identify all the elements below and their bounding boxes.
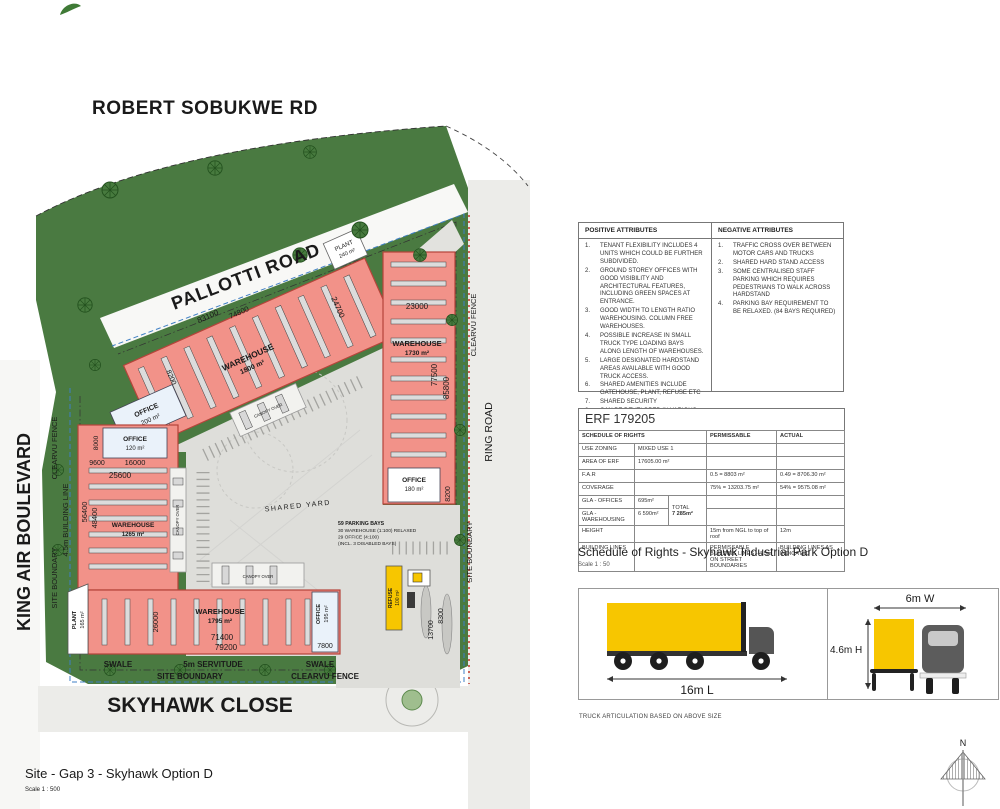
swale-left-label: SWALE (104, 660, 133, 669)
trailer-rear-skid (870, 669, 918, 691)
table-row: HEIGHT 15m from NGL to top of roof 12m (579, 526, 845, 543)
positive-attributes-header: POSITIVE ATTRIBUTES (579, 223, 711, 239)
cab-baseplate (920, 673, 966, 678)
row-value: MIXED USE 1 (635, 444, 707, 457)
empty-cell (707, 444, 777, 457)
trailer-headboard (741, 602, 746, 652)
dim-west-25600: 25600 (109, 471, 132, 480)
gla-total-value: 7 285m² (672, 511, 703, 517)
row-label: AREA OF ERF (579, 457, 635, 470)
actual-value: 54% = 9575.08 m² (777, 483, 845, 496)
list-item: 2.SHARED HARD STAND ACCESS (716, 260, 840, 268)
north-arrow: N (941, 738, 985, 806)
refuse-label: REFUSE (388, 587, 394, 608)
row-label: HEIGHT (579, 526, 635, 543)
table-row: SCHEDULE OF RIGHTS PERMISSABLE ACTUAL (579, 431, 845, 444)
canopy-west: CANOPY OVER (170, 468, 186, 572)
erf-number: ERF 179205 (578, 408, 845, 430)
left-boundary-label: SITE BOUNDARY (50, 547, 59, 608)
item-text: SHARED AMENITIES INCLUDE GATEHOUSE, PLAN… (600, 382, 708, 398)
dim-gate-13700: 13700 (428, 620, 435, 640)
item-number: 1. (716, 243, 733, 259)
schedule-caption-scale: Scale 1 : 50 (578, 562, 610, 568)
row-label: GLA - OFFICES (579, 496, 635, 509)
table-row: AREA OF ERF 17605.00 m² (579, 457, 845, 470)
item-text: TRAFFIC CROSS OVER BETWEEN MOTOR CARS AN… (733, 243, 840, 259)
negative-attributes-list: 1.TRAFFIC CROSS OVER BETWEEN MOTOR CARS … (712, 239, 843, 318)
dim-west-16000: 16000 (125, 458, 146, 467)
refuse-area: 100 m² (395, 590, 401, 606)
office-180-area: 180 m² (405, 487, 424, 493)
right-fence-label: CLEARVU FENCE (469, 294, 478, 357)
road-label-robert-sobukwe: ROBERT SOBUKWE RD (92, 98, 318, 119)
list-item: 4.POSSIBLE INCREASE IN SMALL TRUCK TYPE … (583, 333, 708, 357)
truck-size-panel: 16m L 6m W 4.6m H (578, 588, 999, 700)
table-row: COVERAGE 75% = 13203.75 m² 54% = 9575.08… (579, 483, 845, 496)
row-label: GLA - WAREHOUSING (579, 509, 635, 526)
dim-south-71400: 71400 (211, 633, 234, 642)
empty-cell (777, 496, 845, 509)
corner-logo (60, 4, 81, 15)
width-dimension (874, 605, 966, 611)
road-label-skyhawk: SKYHAWK CLOSE (107, 694, 293, 717)
trailer-rear-body (874, 619, 914, 669)
row-label: F.A.R (579, 470, 635, 483)
dim-west-8000: 8000 (93, 435, 100, 450)
list-item: 7.SHARED SECURITY (583, 399, 708, 407)
left-building-line-label: 4.5m BUILDING LINE (61, 484, 70, 557)
table-row: GLA - WAREHOUSING 6 590m² (579, 509, 845, 526)
warehouse-west: OFFICE 120 m² 8000 9600 16000 25600 5640… (78, 425, 178, 590)
warehouse-west-label: WAREHOUSE (112, 522, 155, 529)
list-item: 6.SHARED AMENITIES INCLUDE GATEHOUSE, PL… (583, 382, 708, 398)
item-text: SHARED SECURITY (600, 399, 708, 407)
col-header-actual: ACTUAL (777, 431, 845, 444)
truck-cab (749, 627, 774, 654)
left-fence-label: CLEARVU FENCE (50, 417, 59, 480)
ring-road-surface (468, 180, 530, 809)
cab-window (928, 631, 958, 646)
swale-right-label: SWALE (306, 660, 335, 669)
item-number: 3. (716, 269, 733, 301)
table-row: F.A.R 0.5 = 8803 m² 0.49 = 8706.30 m² (579, 470, 845, 483)
warehouse-east: 23000 WAREHOUSE 1730 m² 77500 85800 OFFI… (383, 252, 455, 504)
road-label-ring: RING ROAD (483, 402, 495, 462)
length-dimension (607, 676, 787, 682)
gla-total-cell: TOTAL 7 285m² (669, 496, 707, 526)
schedule-caption: Schedule of Rights - Skyhawk Industrial … (578, 545, 868, 559)
dim-office180-8200: 8200 (445, 486, 452, 502)
item-number: 6. (583, 382, 600, 398)
col-header-rights: SCHEDULE OF RIGHTS (579, 431, 707, 444)
plant-165-area: 165 m² (80, 611, 86, 628)
width-dimension-label: 6m W (906, 593, 935, 605)
canopy-south-label: CANOPY OVER (243, 574, 274, 579)
item-text: GROUND STOREY OFFICES WITH GOOD VISIBILI… (600, 268, 708, 308)
empty-cell (635, 470, 707, 483)
permissable-value: 75% = 13203.75 m² (707, 483, 777, 496)
permissable-value: 15m from NGL to top of roof (707, 526, 777, 543)
dim-west-56400: 56400 (80, 502, 89, 523)
office-195-area: 195 m² (324, 605, 330, 622)
warehouse-south-label: WAREHOUSE (195, 607, 244, 616)
dim-east-77500: 77500 (430, 363, 439, 386)
dim-east-23000: 23000 (406, 302, 429, 311)
item-number: 7. (583, 399, 600, 407)
trailer-body (607, 603, 741, 651)
roundabout-island (402, 690, 422, 710)
drawing-sheet: 83100 74800 24700 WAREHOUSE 1800 m² PLAN… (0, 0, 1000, 809)
attributes-table: POSITIVE ATTRIBUTES 1.TENANT FLEXIBILITY… (578, 222, 844, 392)
dim-east-85800: 85800 (442, 376, 451, 399)
item-number: 2. (716, 260, 733, 268)
item-number: 5. (583, 358, 600, 382)
item-number: 2. (583, 268, 600, 308)
servitude-label: 5m SERVITUDE (183, 660, 243, 669)
row-value: 695m² (635, 496, 669, 509)
item-text: PARKING BAY REQUIREMENT TO BE RELAXED. (… (733, 301, 840, 317)
table-row: GLA - OFFICES 695m² TOTAL 7 285m² (579, 496, 845, 509)
bottom-boundary-label: SITE BOUNDARY (157, 672, 224, 681)
gate-truck (407, 592, 415, 608)
parking-note-line1: 30 WAREHOUSE (1:100) RELAXED (338, 528, 417, 534)
list-item: 1.TENANT FLEXIBILITY INCLUDES 4 UNITS WH… (583, 243, 708, 267)
item-text: POSSIBLE INCREASE IN SMALL TRUCK TYPE LO… (600, 333, 708, 357)
bottom-fence-label: CLEARVU FENCE (291, 672, 360, 681)
item-number: 1. (583, 243, 600, 267)
boom-gate (413, 573, 422, 582)
empty-cell (707, 509, 777, 526)
item-number: 3. (583, 308, 600, 332)
office-120-area: 120 m² (126, 446, 145, 452)
item-text: LARGE DESIGNATED HARDSTAND AREAS AVAILAB… (600, 358, 708, 382)
truck-note: TRUCK ARTICULATION BASED ON ABOVE SIZE (579, 714, 722, 720)
item-text: TENANT FLEXIBILITY INCLUDES 4 UNITS WHIC… (600, 243, 708, 267)
dim-gate-8300: 8300 (438, 608, 445, 624)
negative-attributes-header: NEGATIVE ATTRIBUTES (712, 223, 843, 239)
canopy-south: CANOPY OVER (212, 563, 304, 587)
item-text: GOOD WIDTH TO LENGTH RATIO WAREHOUSING. … (600, 308, 708, 332)
dim-west-9600: 9600 (89, 460, 105, 467)
col-header-permissable: PERMISSABLE (707, 431, 777, 444)
truck-rear-drawing: 6m W 4.6m H (828, 589, 1000, 699)
empty-cell (707, 457, 777, 470)
empty-cell (707, 496, 777, 509)
parking-note-line3: (INCL. 3 DISABLED BAYS) (338, 541, 397, 547)
plant-165: PLANT 165 m² (68, 584, 88, 654)
positive-attributes-list: 1.TENANT FLEXIBILITY INCLUDES 4 UNITS WH… (579, 239, 711, 425)
north-label: N (960, 738, 967, 748)
item-text: SHARED HARD STAND ACCESS (733, 260, 840, 268)
plant-165-label: PLANT (72, 610, 78, 629)
truck-side-drawing: 16m L (579, 589, 827, 699)
table-row: USE ZONING MIXED USE 1 (579, 444, 845, 457)
dim-office195-7800: 7800 (317, 643, 333, 650)
truck-side-view: 16m L (579, 589, 827, 699)
item-number: 4. (583, 333, 600, 357)
item-number: 4. (716, 301, 733, 317)
empty-cell (777, 457, 845, 470)
right-boundary-label: SITE BOUNDARY (465, 521, 474, 582)
office-120: OFFICE 120 m² (103, 428, 167, 458)
height-dimension (865, 619, 871, 689)
empty-cell (635, 526, 707, 543)
row-value: 6 590m² (635, 509, 669, 526)
empty-cell (777, 509, 845, 526)
parking-note-title: 59 PARKING BAYS (338, 521, 385, 527)
road-label-king-air: KING AIR BOULEVARD (14, 433, 34, 631)
office-180: OFFICE 180 m² (388, 468, 440, 502)
office-195-label: OFFICE (316, 604, 322, 624)
parking-note-line2: 29 OFFICE (4:100) (338, 535, 379, 541)
dim-west-48400: 48400 (90, 508, 99, 529)
warehouse-west-area: 1265 m² (122, 531, 144, 538)
actual-value: 12m (777, 526, 845, 543)
empty-cell (777, 444, 845, 457)
dim-south-26000: 26000 (151, 612, 160, 633)
list-item: 5.LARGE DESIGNATED HARDSTAND AREAS AVAIL… (583, 358, 708, 382)
row-label: COVERAGE (579, 483, 635, 496)
actual-value: 0.49 = 8706.30 m² (777, 470, 845, 483)
sheet-scale: Scale 1 : 500 (25, 787, 61, 793)
item-text: SOME CENTRALISED STAFF PARKING WHICH REQ… (733, 269, 840, 301)
list-item: 3.GOOD WIDTH TO LENGTH RATIO WAREHOUSING… (583, 308, 708, 332)
warehouse-east-area: 1730 m² (405, 350, 430, 357)
list-item: 4.PARKING BAY REQUIREMENT TO BE RELAXED.… (716, 301, 840, 317)
list-item: 3.SOME CENTRALISED STAFF PARKING WHICH R… (716, 269, 840, 301)
office-120-label: OFFICE (123, 436, 147, 443)
length-dimension-label: 16m L (680, 683, 714, 697)
height-dimension-label: 4.6m H (830, 645, 862, 656)
row-value: 17605.00 m² (635, 457, 707, 470)
list-item: 1.TRAFFIC CROSS OVER BETWEEN MOTOR CARS … (716, 243, 840, 259)
negative-attributes-column: NEGATIVE ATTRIBUTES 1.TRAFFIC CROSS OVER… (711, 223, 843, 391)
warehouse-south: WAREHOUSE 1795 m² 26000 71400 79200 OFFI… (68, 584, 340, 654)
empty-cell (635, 483, 707, 496)
cab-wheels (926, 678, 959, 694)
warehouse-east-label: WAREHOUSE (392, 339, 441, 348)
dim-south-79200: 79200 (215, 643, 238, 652)
canopy-west-label: CANOPY OVER (175, 505, 180, 536)
permissable-value: 0.5 = 8803 m² (707, 470, 777, 483)
office-180-label: OFFICE (402, 477, 426, 484)
row-label: USE ZONING (579, 444, 635, 457)
sheet-title: Site - Gap 3 - Skyhawk Option D (25, 766, 213, 781)
positive-attributes-column: POSITIVE ATTRIBUTES 1.TENANT FLEXIBILITY… (579, 223, 711, 391)
list-item: 2.GROUND STOREY OFFICES WITH GOOD VISIBI… (583, 268, 708, 308)
warehouse-south-area: 1795 m² (208, 618, 233, 625)
truck-rear-view: 6m W 4.6m H (827, 589, 1000, 699)
